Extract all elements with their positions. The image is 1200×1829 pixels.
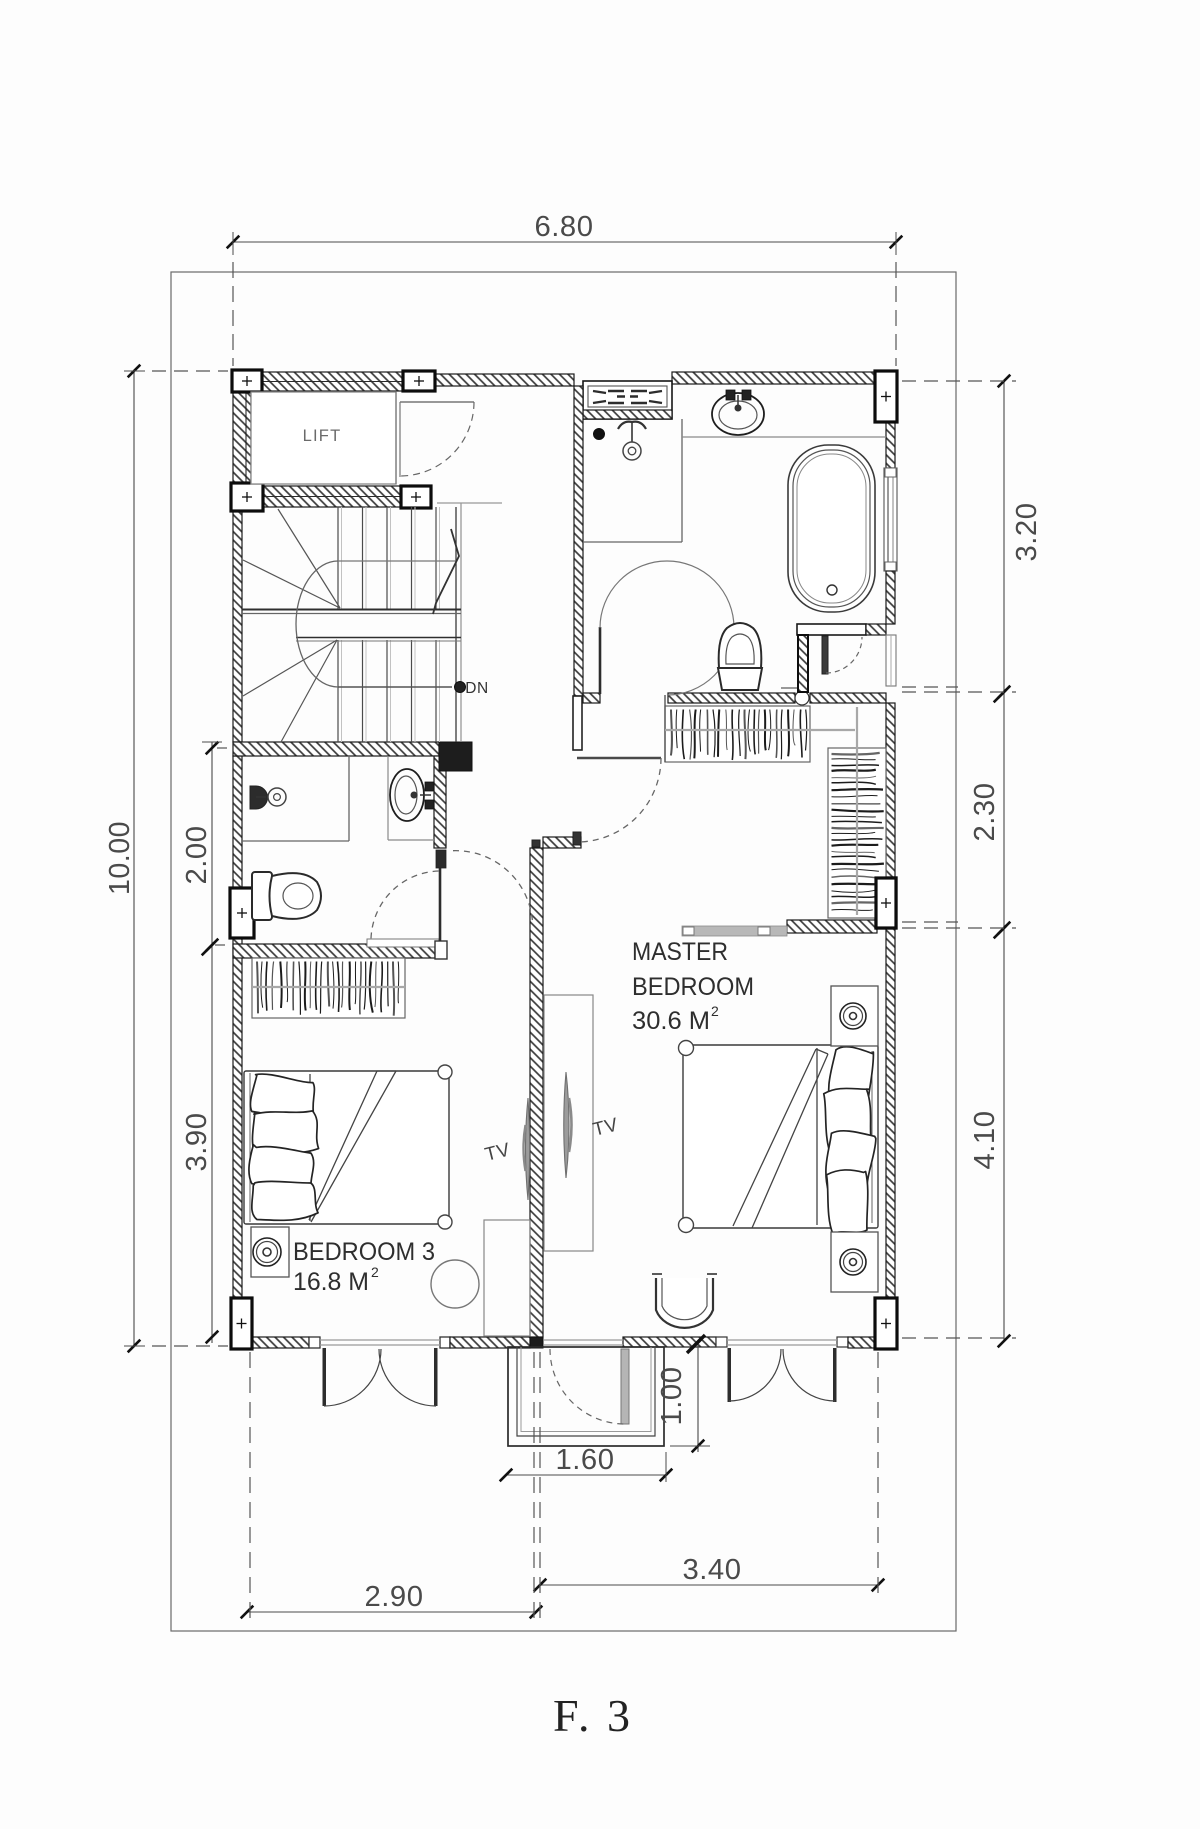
- svg-text:3.90: 3.90: [181, 1113, 213, 1172]
- svg-text:10.00: 10.00: [104, 821, 136, 895]
- svg-text:2.90: 2.90: [365, 1581, 424, 1613]
- svg-text:1.60: 1.60: [556, 1444, 615, 1476]
- svg-text:30.6 M: 30.6 M: [632, 1007, 710, 1035]
- svg-text:BEDROOM 3: BEDROOM 3: [293, 1238, 435, 1266]
- svg-text:2.30: 2.30: [969, 783, 1001, 842]
- svg-text:6.80: 6.80: [535, 211, 594, 243]
- svg-text:16.8 M: 16.8 M: [293, 1268, 369, 1296]
- svg-text:2: 2: [371, 1264, 379, 1280]
- svg-text:BEDROOM: BEDROOM: [632, 973, 754, 1001]
- svg-text:F. 3: F. 3: [553, 1690, 633, 1741]
- svg-text:4.10: 4.10: [969, 1111, 1001, 1170]
- svg-text:2: 2: [711, 1003, 719, 1019]
- svg-text:MASTER: MASTER: [632, 938, 728, 966]
- svg-text:1.00: 1.00: [656, 1367, 688, 1426]
- svg-text:2.00: 2.00: [181, 826, 213, 885]
- svg-text:3.40: 3.40: [683, 1554, 742, 1586]
- svg-text:DN: DN: [465, 680, 488, 697]
- svg-text:3.20: 3.20: [1011, 503, 1043, 562]
- svg-text:LIFT: LIFT: [303, 427, 342, 445]
